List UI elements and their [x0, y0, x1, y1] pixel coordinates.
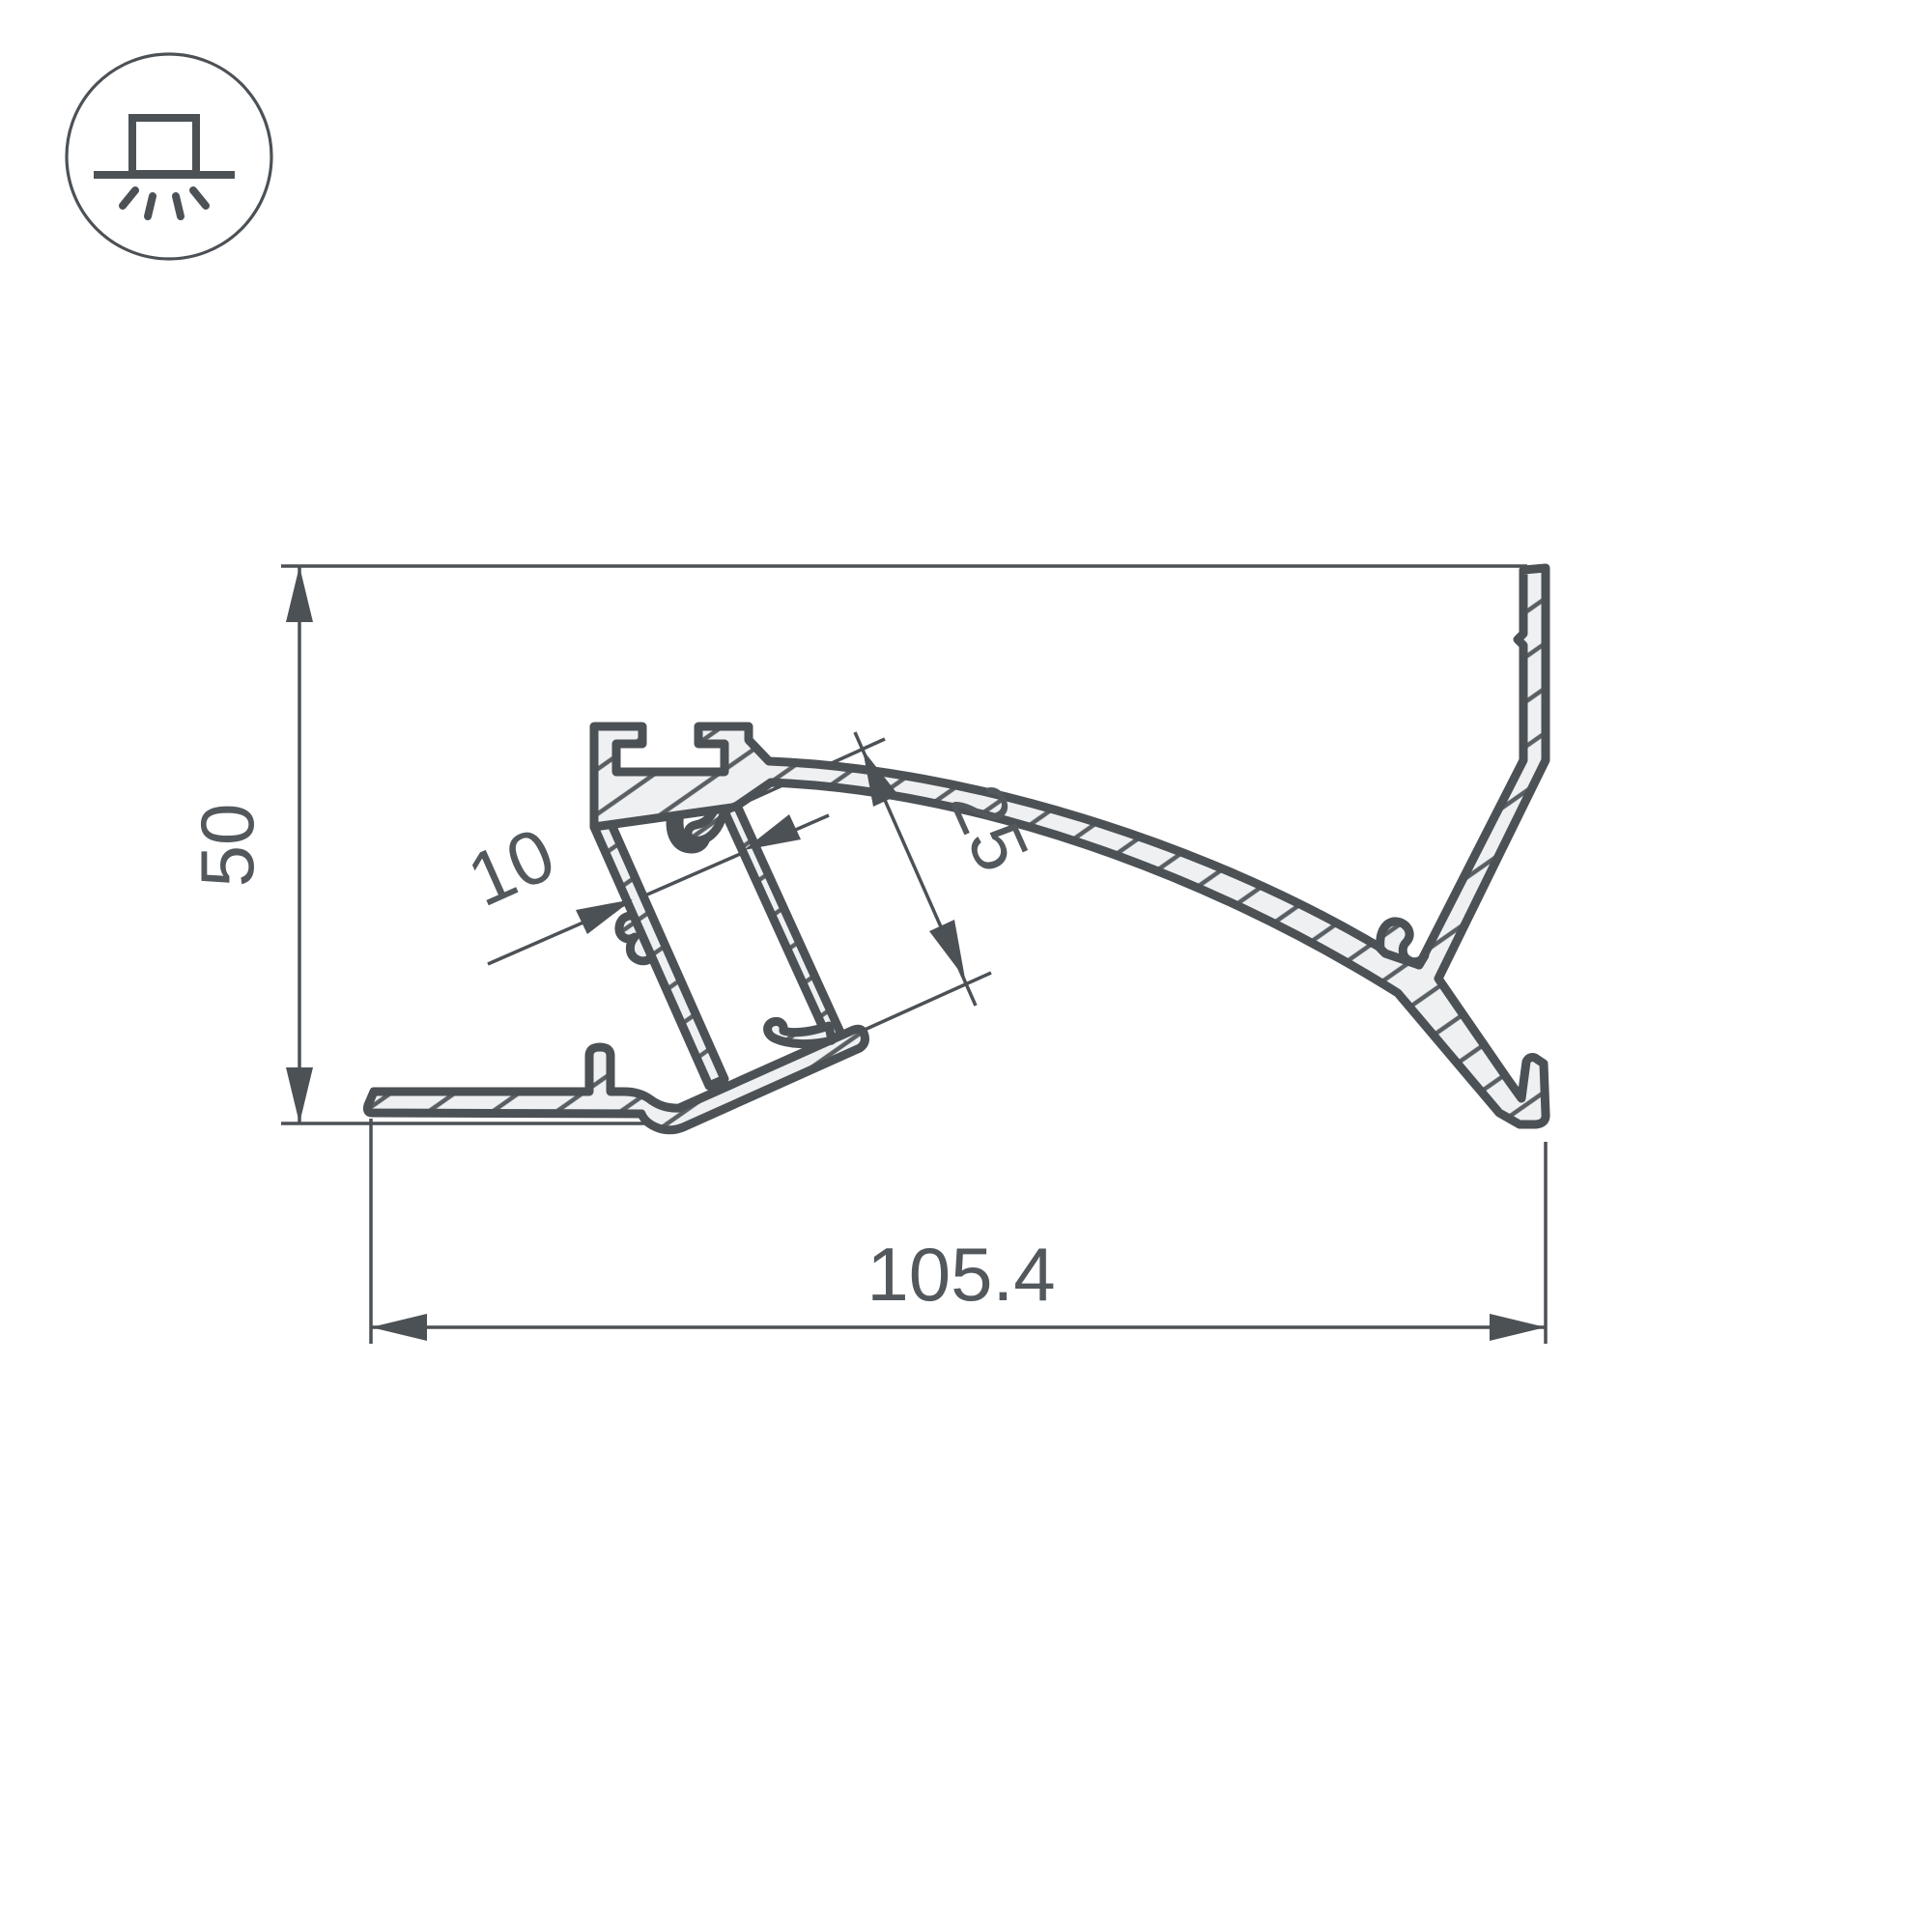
- dimension-width-105: 105.4: [371, 1232, 1546, 1341]
- arrowhead-right: [1490, 1314, 1546, 1341]
- clip-curve-bump: [1380, 922, 1425, 965]
- icon-circle: [67, 54, 271, 259]
- icon-light-rays: [123, 190, 206, 216]
- channel-back-wall: [594, 820, 724, 1086]
- arrowhead-down-right: [929, 920, 965, 979]
- drawing-canvas: 50 105.4 25 10: [0, 0, 1932, 1932]
- arrowhead-down: [286, 1067, 313, 1123]
- technical-drawing: 50 105.4 25 10: [0, 0, 1932, 1932]
- clip-foot: [768, 1021, 832, 1043]
- arrowhead-left: [371, 1314, 427, 1341]
- dimension-label-slot: 10: [455, 810, 566, 923]
- icon-fixture-box: [132, 118, 196, 174]
- dimension-height-50: 50: [185, 566, 313, 1123]
- ext-line-depth-2: [856, 973, 991, 1034]
- arrowhead-up: [286, 566, 313, 622]
- dimension-label-width: 105.4: [867, 1232, 1055, 1317]
- dimension-label-height: 50: [185, 804, 270, 888]
- surface-mounted-light-icon: [67, 54, 271, 259]
